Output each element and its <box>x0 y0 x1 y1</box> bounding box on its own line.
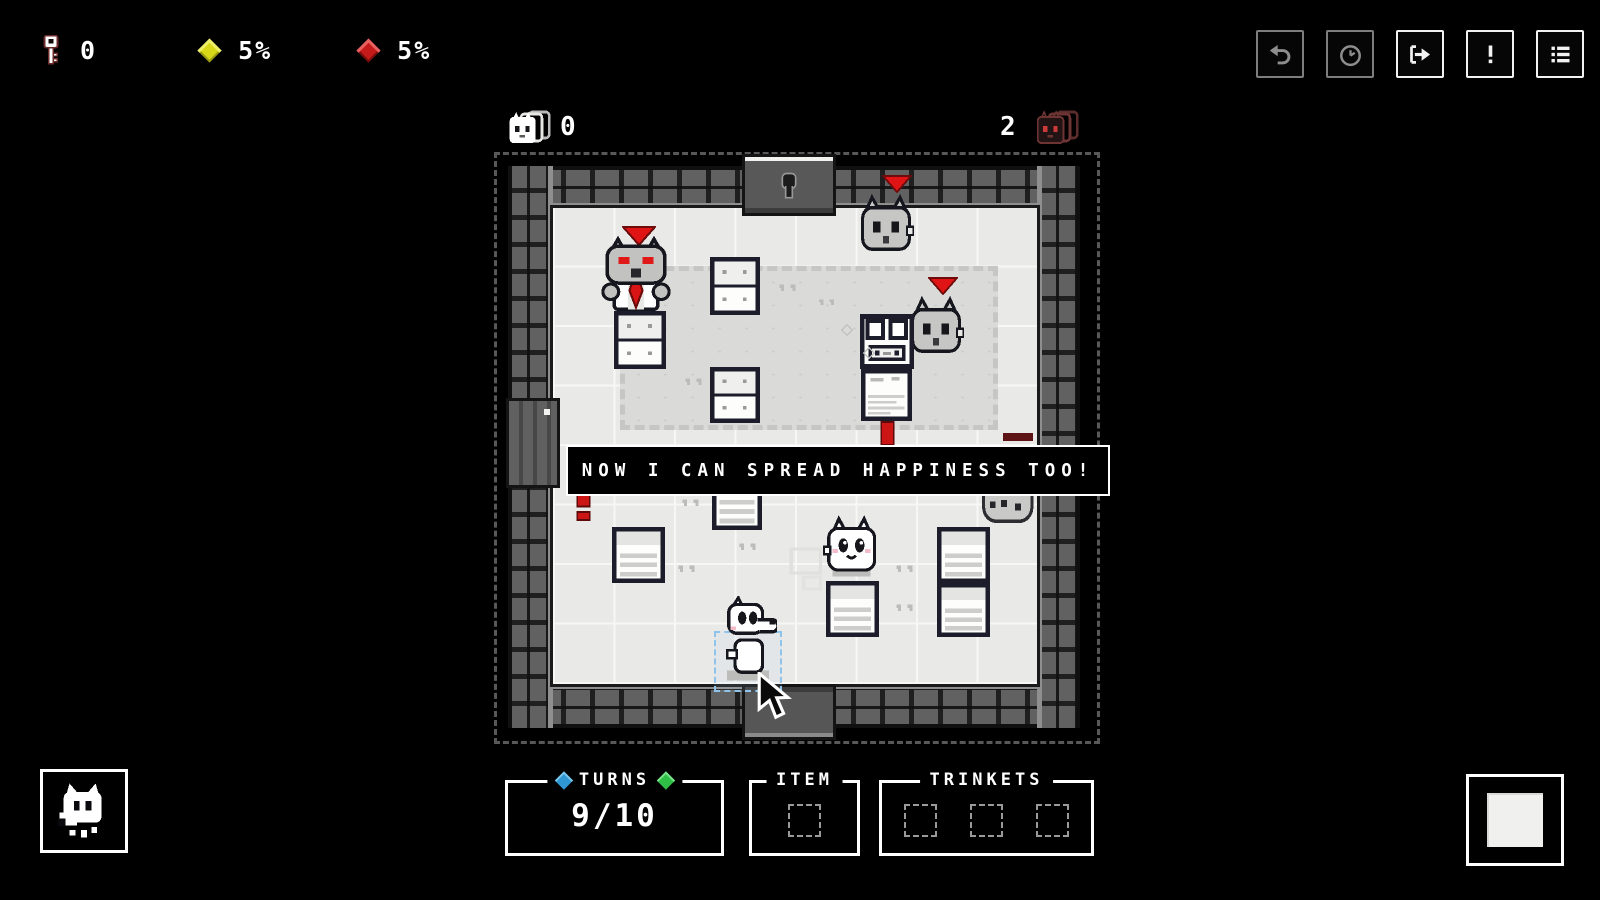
dresser[interactable] <box>710 367 760 423</box>
happiness-diamond-icon <box>198 38 222 62</box>
happy-cat[interactable] <box>823 514 880 578</box>
bed[interactable] <box>826 581 879 637</box>
trinket-slot[interactable] <box>970 804 1003 837</box>
speech-bubble: NOW I CAN SPREAD HAPPINESS TOO! <box>566 445 1110 496</box>
door-left[interactable] <box>506 398 560 488</box>
happy-cats-counter-icon <box>506 108 554 148</box>
turns-label: TURNS <box>547 770 682 790</box>
paw-print <box>893 600 919 614</box>
cabinet[interactable] <box>860 314 914 369</box>
angry-cat[interactable] <box>908 296 964 358</box>
wait-button[interactable] <box>1326 30 1374 78</box>
minimap[interactable] <box>1466 774 1564 866</box>
paw-print <box>816 295 840 308</box>
speech-text: NOW I CAN SPREAD HAPPINESS TOO! <box>582 461 1095 481</box>
door-handle <box>544 409 550 415</box>
turns-label-text: TURNS <box>579 770 650 790</box>
green-diamond-icon <box>656 771 674 789</box>
toolbar <box>1256 30 1584 78</box>
item-label: ITEM <box>766 770 843 790</box>
faded-marker <box>1003 433 1033 441</box>
log-button[interactable] <box>1536 30 1584 78</box>
game-screen: 0 5% 5% 0 2 NOW I CAN SPREAD HAPPINESS T… <box>0 0 1600 900</box>
trinkets-label: TRINKETS <box>920 770 1054 790</box>
current-room-square <box>1487 793 1543 847</box>
door-top[interactable] <box>742 154 836 216</box>
item-label-text: ITEM <box>776 770 833 790</box>
end-turn-button[interactable] <box>1396 30 1444 78</box>
turns-panel: TURNS 9/10 <box>505 780 724 856</box>
happy-cats-count: 0 <box>560 112 576 142</box>
paw-print <box>736 539 762 553</box>
angry-cats-counter-icon <box>1034 108 1082 148</box>
aggro-marker <box>928 277 958 295</box>
list-icon <box>1547 41 1574 68</box>
clock-icon <box>1337 41 1364 68</box>
exit-arrow-icon <box>1407 41 1434 68</box>
paw-print <box>776 280 802 294</box>
trinkets-label-text: TRINKETS <box>930 770 1044 790</box>
alert-marker <box>879 421 896 446</box>
dresser[interactable] <box>710 257 760 315</box>
dog-face-icon <box>55 782 113 840</box>
bed[interactable] <box>612 527 665 583</box>
keyhole-icon <box>777 171 801 201</box>
turns-value: 9/10 <box>508 798 721 834</box>
aggro-marker <box>882 175 912 193</box>
paw-print <box>682 374 708 388</box>
key-count: 0 <box>80 36 97 65</box>
player-portrait[interactable] <box>40 769 128 853</box>
alerts-button[interactable] <box>1466 30 1514 78</box>
sparkle <box>863 347 875 359</box>
trinket-slot[interactable] <box>1036 804 1069 837</box>
sparkle <box>841 324 853 336</box>
trinket-slot[interactable] <box>904 804 937 837</box>
desk[interactable] <box>861 369 912 421</box>
boss-cat[interactable] <box>600 234 672 318</box>
player-character[interactable] <box>719 596 777 684</box>
bed[interactable] <box>937 527 990 583</box>
angry-cat[interactable] <box>858 194 914 256</box>
item-panel: ITEM <box>749 780 860 856</box>
happiness-value: 5% <box>238 36 272 65</box>
undo-icon <box>1267 41 1294 68</box>
danger-value: 5% <box>397 36 431 65</box>
trinkets-panel: TRINKETS <box>879 780 1094 856</box>
mouse-cursor <box>754 672 794 720</box>
angry-cats-count: 2 <box>1000 112 1016 142</box>
bed[interactable] <box>937 583 990 637</box>
paw-print <box>679 495 705 509</box>
exclamation-icon <box>1477 41 1504 68</box>
paw-print <box>893 561 919 575</box>
resource-bar: 0 5% 5% <box>40 34 431 66</box>
undo-button[interactable] <box>1256 30 1304 78</box>
key-icon <box>40 34 62 66</box>
blue-diamond-icon <box>554 771 572 789</box>
dresser[interactable] <box>614 311 666 369</box>
item-slot[interactable] <box>788 804 821 837</box>
paw-print <box>675 561 701 575</box>
danger-diamond-icon <box>357 38 381 62</box>
